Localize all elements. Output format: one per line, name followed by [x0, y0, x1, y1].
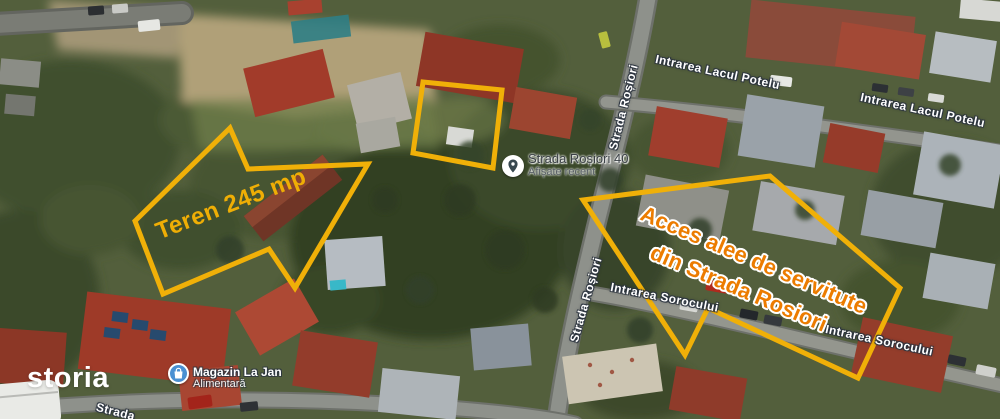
place-marker-title: Strada Roșiori 40	[528, 151, 628, 166]
poi-marker-icon[interactable]	[168, 363, 189, 384]
place-marker-pin[interactable]	[502, 155, 524, 177]
poi-title: Magazin La Jan	[193, 365, 282, 379]
poi-subtitle: Alimentară	[193, 378, 246, 390]
map-screenshot[interactable]: Intrarea Lacul Potelu Intrarea Lacul Pot…	[0, 0, 1000, 419]
place-marker-subtitle: Afișate recent	[528, 166, 595, 178]
storia-watermark-logo: storia	[27, 362, 109, 395]
satellite-imagery	[0, 0, 1000, 419]
location-pin-icon	[502, 155, 524, 177]
shopping-bag-icon	[170, 365, 187, 382]
